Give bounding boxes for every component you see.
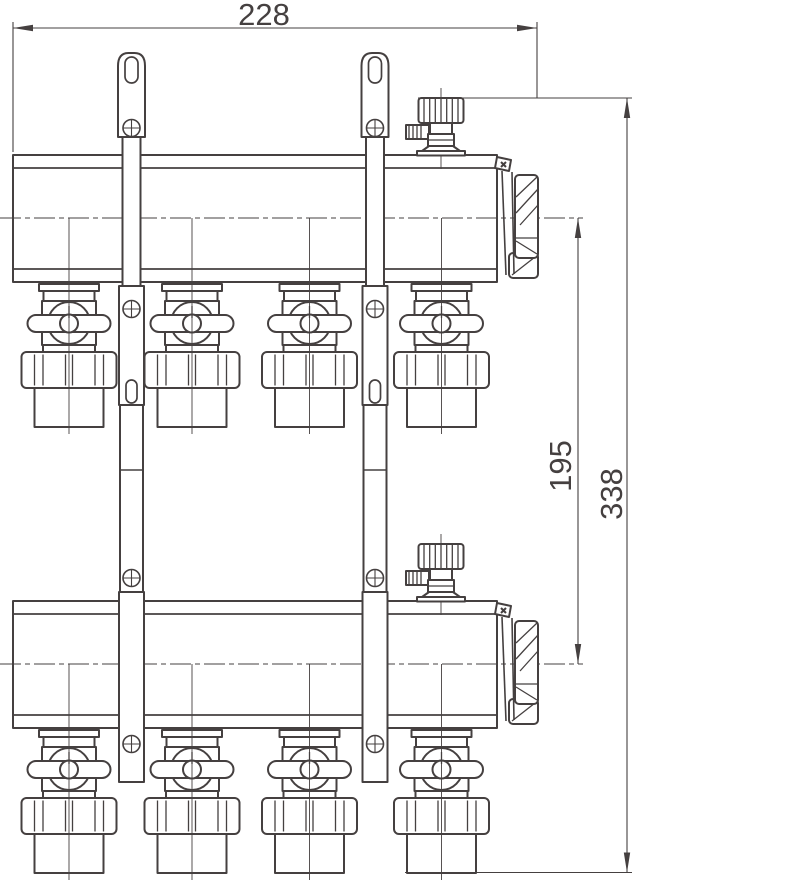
dimension-width-228: 228 — [13, 0, 537, 152]
end-cap-top — [495, 157, 538, 278]
dimension-label-height: 338 — [594, 468, 629, 520]
manifold-top-barrel — [13, 155, 497, 282]
dimension-label-width: 228 — [238, 0, 290, 32]
mounting-bracket-right — [362, 53, 389, 782]
drawing-canvas: 228 195 338 — [0, 0, 800, 882]
mounting-bracket-left — [118, 53, 145, 782]
end-cap-bottom — [495, 603, 538, 724]
manifold-bottom-barrel — [13, 601, 497, 728]
dimension-spacing-195: 195 — [543, 218, 581, 664]
dimension-label-spacing: 195 — [543, 440, 578, 492]
manifold-technical-drawing: 228 195 338 — [0, 0, 800, 882]
